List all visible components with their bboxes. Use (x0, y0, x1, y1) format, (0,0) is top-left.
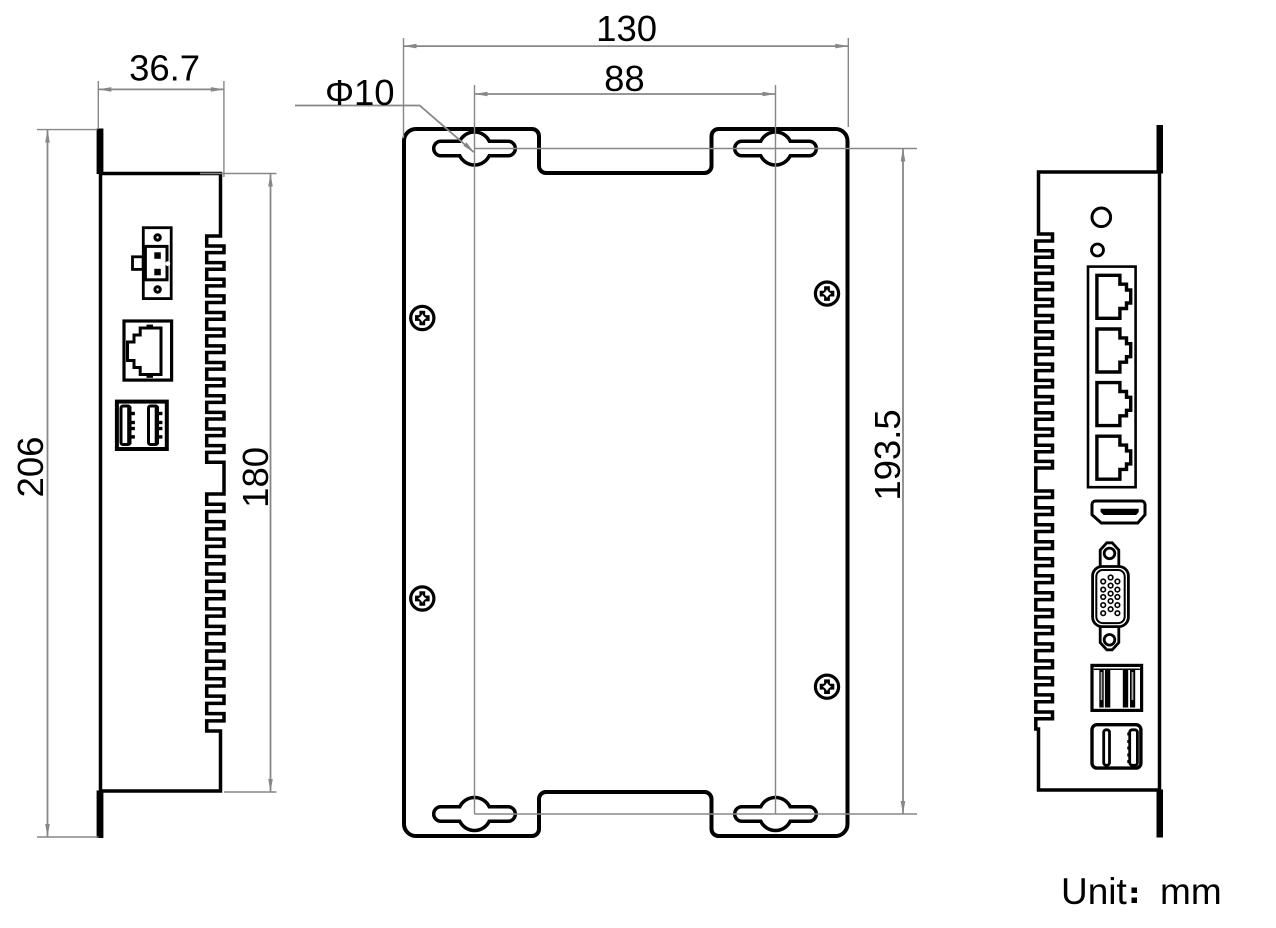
svg-text:88: 88 (604, 58, 645, 99)
svg-text:36.7: 36.7 (129, 48, 200, 89)
svg-text:206: 206 (10, 437, 51, 498)
svg-text:10: 10 (354, 72, 395, 113)
svg-text:193.5: 193.5 (867, 409, 908, 500)
svg-text:mm: mm (1160, 871, 1222, 912)
svg-text:Unit: Unit (1061, 871, 1128, 912)
svg-text:130: 130 (596, 8, 657, 49)
svg-text:Φ: Φ (325, 72, 354, 113)
svg-text:180: 180 (235, 447, 276, 508)
